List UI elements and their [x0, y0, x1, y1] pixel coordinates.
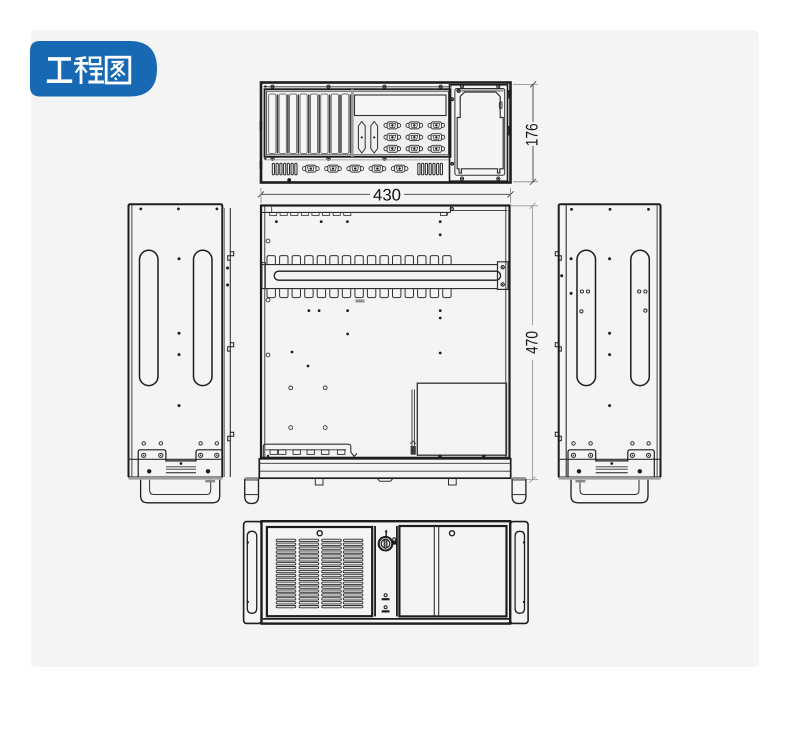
- svg-text:430: 430: [373, 185, 401, 204]
- svg-text:470: 470: [523, 331, 542, 354]
- svg-text:176: 176: [523, 123, 542, 146]
